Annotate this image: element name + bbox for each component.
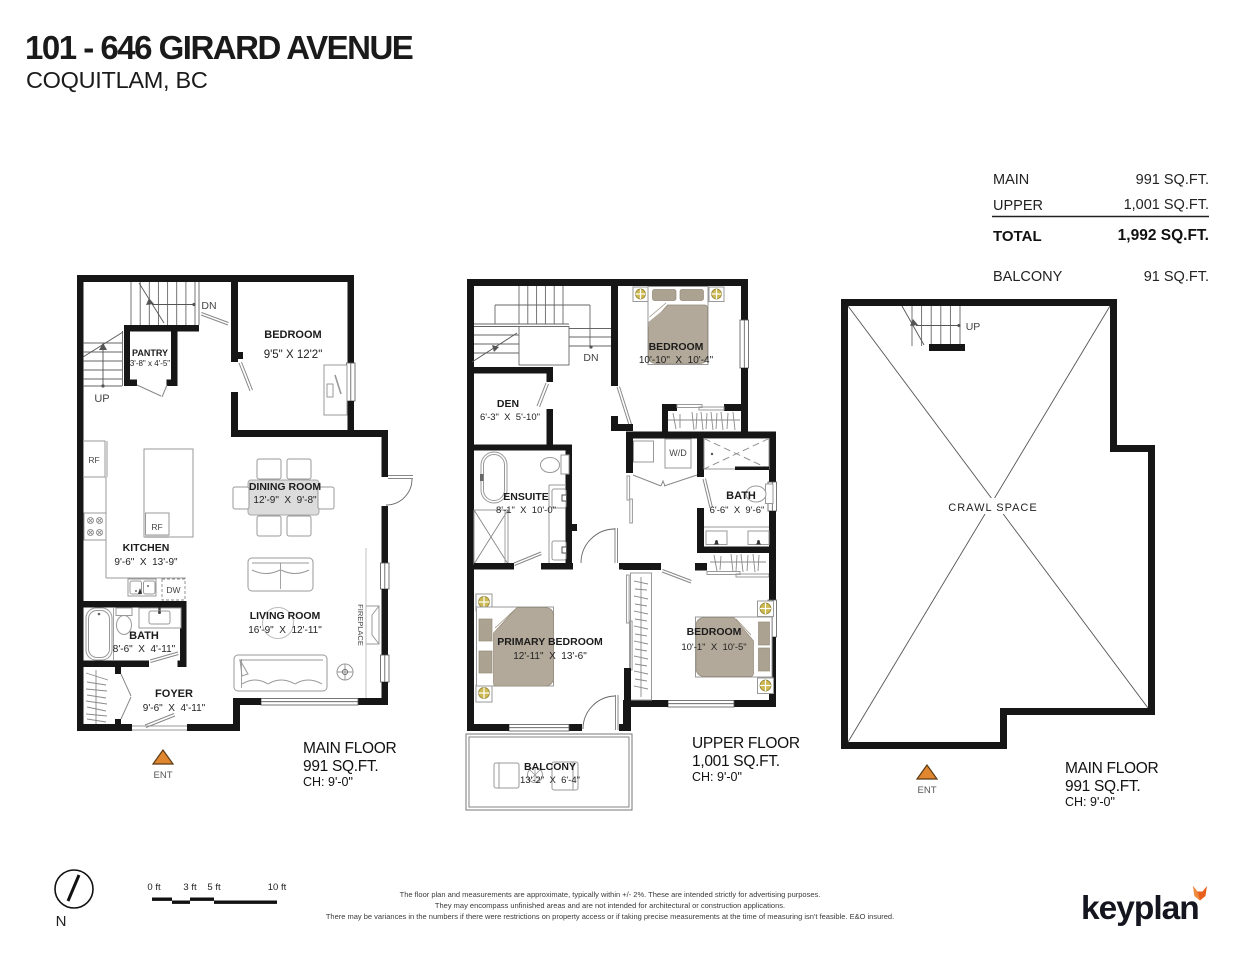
svg-text:ENSUITE: ENSUITE: [503, 491, 549, 503]
svg-text:DN: DN: [201, 300, 216, 312]
svg-text:MAIN: MAIN: [993, 172, 1029, 188]
svg-text:BEDROOM: BEDROOM: [649, 341, 704, 353]
svg-text:BATH: BATH: [726, 490, 756, 502]
svg-text:BEDROOM: BEDROOM: [264, 329, 321, 341]
svg-text:BATH: BATH: [129, 630, 159, 642]
svg-text:6'-6" X 9'-6": 6'-6" X 9'-6": [710, 505, 765, 516]
svg-text:TOTAL: TOTAL: [993, 228, 1042, 245]
svg-text:0 ft: 0 ft: [147, 882, 161, 893]
svg-text:LIVING ROOM: LIVING ROOM: [250, 610, 321, 622]
svg-text:MAIN FLOOR: MAIN FLOOR: [303, 740, 397, 757]
svg-text:1,992 SQ.FT.: 1,992 SQ.FT.: [1118, 227, 1209, 244]
svg-text:10'-1" X 10'-5": 10'-1" X 10'-5": [681, 642, 746, 653]
svg-text:DW: DW: [166, 585, 180, 595]
svg-text:BALCONY: BALCONY: [993, 269, 1063, 285]
svg-text:CH: 9'-0": CH: 9'-0": [1065, 795, 1115, 809]
svg-text:COQUITLAM, BC: COQUITLAM, BC: [26, 67, 208, 93]
svg-text:8'-6" X 4'-11": 8'-6" X 4'-11": [113, 644, 176, 655]
svg-text:BALCONY: BALCONY: [524, 761, 576, 773]
svg-text:PRIMARY BEDROOM: PRIMARY BEDROOM: [497, 636, 603, 648]
svg-text:CH: 9'-0": CH: 9'-0": [303, 775, 353, 789]
svg-text:UP: UP: [94, 393, 109, 405]
svg-text:5 ft: 5 ft: [207, 882, 221, 893]
svg-text:CH: 9'-0": CH: 9'-0": [692, 770, 742, 784]
svg-text:991 SQ.FT.: 991 SQ.FT.: [303, 758, 378, 775]
svg-text:keyplan: keyplan: [1081, 890, 1199, 927]
svg-text:12'-9" X 9'-8": 12'-9" X 9'-8": [253, 495, 317, 506]
svg-text:9'5" X 12'2": 9'5" X 12'2": [264, 349, 323, 361]
svg-text:3 ft: 3 ft: [183, 882, 197, 893]
svg-text:PANTRY: PANTRY: [132, 348, 168, 358]
svg-text:6'-3" X 5'-10": 6'-3" X 5'-10": [480, 412, 540, 423]
svg-text:991 SQ.FT.: 991 SQ.FT.: [1065, 778, 1140, 795]
svg-text:DN: DN: [583, 352, 598, 364]
svg-text:UPPER: UPPER: [993, 198, 1043, 214]
svg-text:8'-1" X 10'-0": 8'-1" X 10'-0": [496, 505, 556, 516]
svg-text:1,001 SQ.FT.: 1,001 SQ.FT.: [1124, 197, 1209, 213]
svg-text:3'-8" x 4'-5": 3'-8" x 4'-5": [130, 359, 170, 368]
svg-text:16'-9" X 12'-11": 16'-9" X 12'-11": [248, 625, 322, 636]
svg-text:12'-11" X 13'-6": 12'-11" X 13'-6": [513, 651, 587, 662]
svg-text:The floor plan and measurement: The floor plan and measurements are appr…: [400, 890, 821, 899]
svg-text:KITCHEN: KITCHEN: [123, 542, 170, 554]
svg-text:101 - 646 GIRARD AVENUE: 101 - 646 GIRARD AVENUE: [25, 29, 413, 66]
svg-text:9'-6" X 13'-9": 9'-6" X 13'-9": [114, 557, 178, 568]
svg-text:DEN: DEN: [497, 398, 519, 410]
svg-text:UP: UP: [966, 321, 981, 333]
svg-text:They may encompass unfinished: They may encompass unfinished areas and …: [435, 901, 785, 910]
svg-text:DINING ROOM: DINING ROOM: [249, 481, 322, 493]
svg-text:RF: RF: [88, 455, 99, 465]
svg-text:There may be variances in the: There may be variances in the numbers if…: [326, 912, 894, 921]
svg-text:ENT: ENT: [154, 770, 173, 781]
svg-text:BEDROOM: BEDROOM: [687, 626, 742, 638]
svg-text:10 ft: 10 ft: [268, 882, 287, 893]
svg-text:MAIN FLOOR: MAIN FLOOR: [1065, 760, 1159, 777]
svg-text:10'-10" X 10'-4": 10'-10" X 10'-4": [639, 355, 714, 366]
svg-text:91 SQ.FT.: 91 SQ.FT.: [1144, 269, 1209, 285]
svg-text:FOYER: FOYER: [155, 688, 193, 700]
svg-text:RF: RF: [151, 522, 162, 532]
svg-text:CRAWL SPACE: CRAWL SPACE: [948, 502, 1037, 514]
svg-text:13'-2" X 6'-4": 13'-2" X 6'-4": [520, 775, 580, 786]
svg-text:991 SQ.FT.: 991 SQ.FT.: [1136, 172, 1209, 188]
svg-text:ENT: ENT: [918, 785, 937, 796]
svg-text:W/D: W/D: [669, 448, 687, 458]
svg-text:9'-6" X 4'-11": 9'-6" X 4'-11": [143, 703, 206, 714]
svg-text:UPPER FLOOR: UPPER FLOOR: [692, 735, 800, 752]
svg-text:N: N: [56, 913, 67, 930]
svg-text:FIREPLACE: FIREPLACE: [356, 604, 365, 646]
svg-text:1,001 SQ.FT.: 1,001 SQ.FT.: [692, 753, 780, 770]
